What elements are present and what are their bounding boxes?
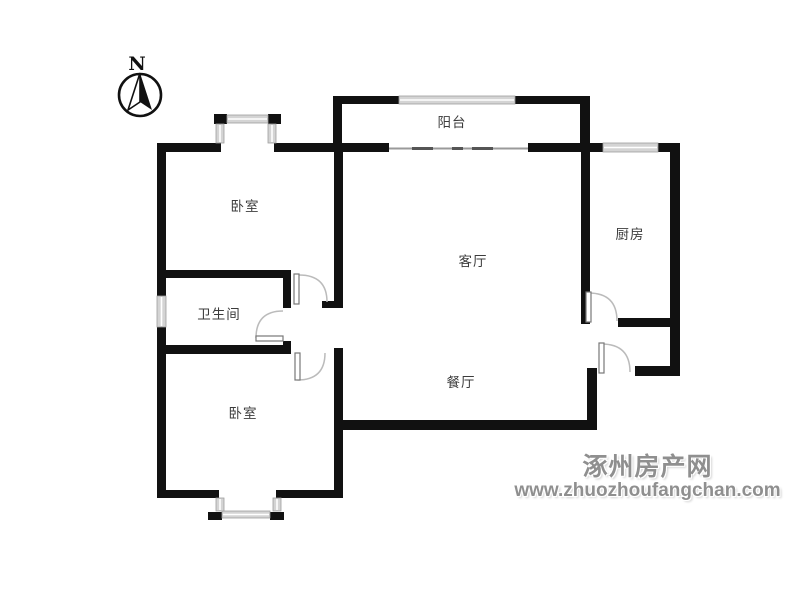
wall-segment [322, 301, 342, 308]
bedroom-top-door [294, 274, 327, 304]
wall-segment [333, 96, 399, 104]
door-leaf [256, 336, 283, 341]
floor-plan: N 阳台 卧室 厨房 客厅 卫生间 餐厅 卧室 涿州房产网 www.zhuozh… [0, 0, 800, 600]
floor-plan-drawing: N 阳台 卧室 厨房 客厅 卫生间 餐厅 卧室 [0, 0, 800, 600]
bedroom-bottom-door [295, 353, 325, 380]
wall-segment [208, 512, 222, 520]
window-sash [452, 147, 463, 150]
balcony-sliding-window [389, 147, 528, 150]
window-sash [412, 147, 433, 150]
door-leaf [586, 292, 591, 322]
wall-segment [274, 143, 389, 152]
watermark: 涿州房产网 www.zhuozhoufangchan.com [505, 454, 790, 501]
door-leaf [294, 274, 299, 304]
door-leaf [295, 353, 300, 380]
wall-segment [157, 270, 288, 278]
door-swing-arc [589, 293, 618, 321]
kitchen-door [586, 292, 617, 322]
compass-needle-light-half [128, 73, 140, 110]
wall-segment [334, 420, 597, 430]
wall-segment [276, 490, 342, 498]
door-swing-arc [602, 344, 631, 372]
wall-segment [587, 368, 597, 430]
wall-segment [618, 318, 670, 327]
door-swing-arc [299, 275, 327, 302]
balcony-top-window [399, 96, 515, 104]
room-label-bedroom-top: 卧室 [231, 198, 260, 214]
window-sash [472, 147, 493, 150]
bathroom-window [157, 296, 166, 327]
door-leaf [599, 343, 604, 373]
wall-segment [635, 366, 679, 376]
watermark-site-url: www.zhuozhoufangchan.com [505, 481, 790, 501]
room-labels: 阳台 卧室 厨房 客厅 卫生间 餐厅 卧室 [197, 115, 644, 421]
door-swing-arc [298, 353, 326, 380]
north-compass: N [119, 53, 161, 116]
bathroom-door [256, 311, 283, 341]
doors [256, 274, 630, 380]
room-label-bathroom: 卫生间 [197, 307, 241, 322]
wall-segment [157, 490, 219, 498]
wall-segment [334, 143, 343, 308]
kitchen-window [603, 143, 658, 152]
wall-segment [214, 114, 227, 124]
room-label-kitchen: 厨房 [616, 227, 645, 242]
wall-segment [515, 96, 586, 104]
wall-segment [670, 143, 680, 376]
entry-door [599, 343, 630, 373]
room-label-dining-room: 餐厅 [447, 375, 476, 390]
wall-segment [270, 512, 284, 520]
wall-segment [528, 143, 603, 152]
wall-segment [283, 270, 291, 308]
room-label-living-room: 客厅 [459, 253, 488, 269]
room-label-balcony: 阳台 [438, 115, 467, 130]
wall-segment [157, 143, 221, 152]
wall-segment [268, 114, 281, 124]
watermark-site-name: 涿州房产网 [505, 454, 790, 481]
compass-needle-dark-half [140, 73, 152, 110]
door-swing-arc [256, 311, 283, 338]
room-label-bedroom-bottom: 卧室 [229, 405, 258, 421]
compass-north-label: N [128, 53, 145, 75]
wall-segment [157, 345, 291, 354]
